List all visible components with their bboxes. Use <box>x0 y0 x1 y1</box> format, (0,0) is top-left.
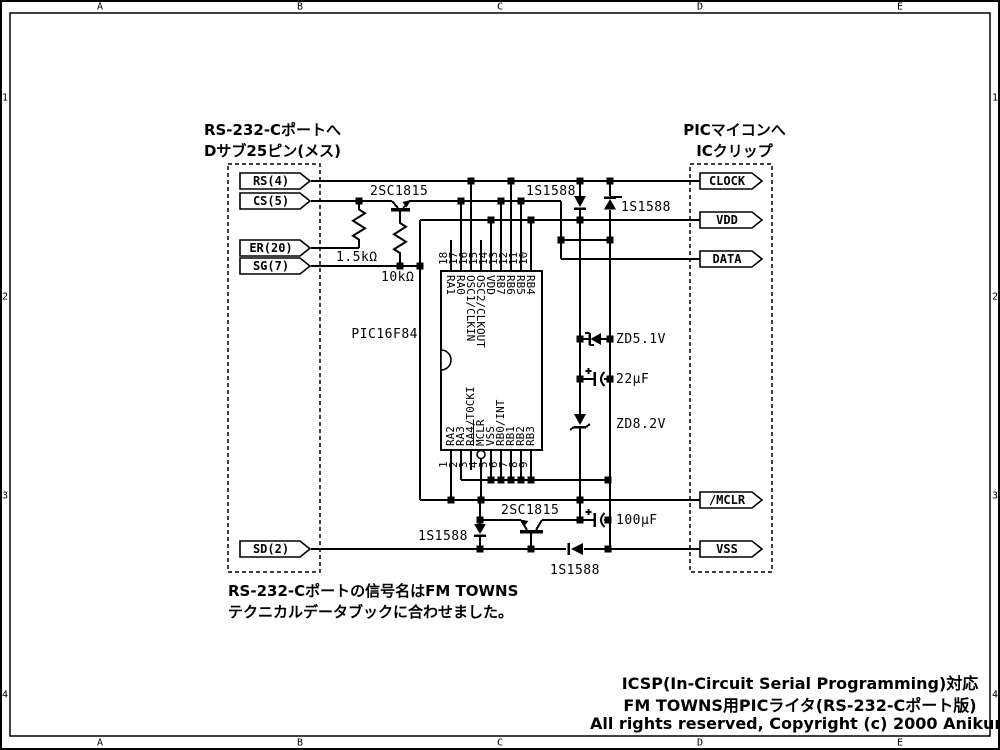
pin-number: 10 <box>517 252 530 265</box>
junction-dot <box>417 263 424 270</box>
junction-dot <box>605 546 612 553</box>
right-connector-label: CLOCK <box>700 173 754 189</box>
part-label-zd2: ZD8.2V <box>616 417 666 432</box>
junction-dot <box>508 477 515 484</box>
diode-1s1588-symbol <box>604 199 616 210</box>
junction-dot <box>577 517 584 524</box>
resistor-1k5 <box>353 201 365 248</box>
junction-dot <box>448 497 455 504</box>
junction-dot <box>607 376 614 383</box>
junction-dot <box>528 477 535 484</box>
zener-symbol <box>591 333 602 345</box>
left-box-header-2: Dサブ25ピン(メス) <box>190 140 355 161</box>
part-label-c2: 100µF <box>616 513 658 528</box>
left-connector-box <box>228 164 320 572</box>
junction-dot <box>577 376 584 383</box>
ic-body <box>441 271 542 450</box>
right-box-header-1: PICマイコンへ <box>652 119 817 140</box>
junction-dot <box>458 198 465 205</box>
junction-dot <box>607 178 614 185</box>
junction-dot <box>478 497 485 504</box>
ruler-label: D <box>697 738 703 749</box>
part-label-d1: 1S1588 <box>526 184 576 199</box>
right-connector-label: VSS <box>700 541 754 557</box>
junction-dot <box>528 546 535 553</box>
junction-dot <box>605 477 612 484</box>
ruler-label: B <box>297 738 303 749</box>
ruler-label: E <box>897 2 903 13</box>
diode-1s1588-symbol <box>474 524 486 534</box>
ruler-label: B <box>297 2 303 13</box>
left-connector-label: RS(4) <box>240 173 302 189</box>
right-connector-label: /MCLR <box>700 492 754 508</box>
junction-dot <box>498 198 505 205</box>
ruler-label: 3 <box>2 491 8 502</box>
ruler-label: A <box>97 738 103 749</box>
schematic-sheet: RS-232-Cポートへ Dサブ25ピン(メス) PICマイコンへ ICクリップ… <box>0 0 1000 750</box>
junction-dot <box>605 517 612 524</box>
right-connector-label: DATA <box>700 251 754 267</box>
left-connector-label: ER(20) <box>240 240 302 256</box>
schematic-canvas <box>0 0 1000 750</box>
part-label-r1: 1.5kΩ <box>336 250 378 265</box>
ruler-label: 4 <box>992 690 998 701</box>
resistor-10k <box>394 210 406 266</box>
junction-dot <box>518 477 525 484</box>
left-connector-label: SD(2) <box>240 541 302 557</box>
junction-dot <box>488 477 495 484</box>
zener-symbol <box>574 414 586 425</box>
part-label-d4: 1S1588 <box>550 563 600 578</box>
q2-emitter-arrow <box>520 520 529 527</box>
ruler-label: C <box>497 738 503 749</box>
junction-dot <box>477 517 484 524</box>
mclr-bubble <box>477 451 485 459</box>
right-box-header-2: ICクリップ <box>652 140 817 161</box>
junction-dot <box>607 336 614 343</box>
pin-name: RB3 <box>524 426 537 446</box>
ruler-label: 1 <box>992 93 998 104</box>
junction-dot <box>577 217 584 224</box>
junction-dot <box>356 198 363 205</box>
right-connector-label: VDD <box>700 212 754 228</box>
left-connector-label: SG(7) <box>240 258 302 274</box>
note-line-2: テクニカルデータブックに合わせました。 <box>228 601 513 622</box>
junction-dot <box>468 178 475 185</box>
zener-hook <box>570 427 574 430</box>
ruler-label: 2 <box>992 292 998 303</box>
part-label-q2: 2SC1815 <box>501 503 559 518</box>
ruler-label: E <box>897 738 903 749</box>
junction-dot <box>558 237 565 244</box>
junction-dot <box>498 477 505 484</box>
junction-dot <box>518 198 525 205</box>
diode-1s1588-symbol <box>571 543 583 555</box>
left-box-header-1: RS-232-Cポートへ <box>190 119 355 140</box>
ruler-label: D <box>697 2 703 13</box>
title-line-1: ICSP(In-Circuit Serial Programming)対応 <box>590 670 1000 694</box>
note-line-1: RS-232-Cポートの信号名はFM TOWNS <box>228 580 518 601</box>
part-label-q1: 2SC1815 <box>370 184 428 199</box>
junction-dot <box>488 217 495 224</box>
ic-name-label: PIC16F84 <box>348 327 418 342</box>
left-connector-label: CS(5) <box>240 193 302 209</box>
ruler-label: A <box>97 2 103 13</box>
zener-hook <box>586 424 590 427</box>
junction-dot <box>577 178 584 185</box>
ruler-label: 3 <box>992 491 998 502</box>
ruler-label: 1 <box>2 93 8 104</box>
part-label-r2: 10kΩ <box>381 270 414 285</box>
q1-collector <box>392 201 398 208</box>
part-label-d2: 1S1588 <box>621 200 671 215</box>
ruler-label: C <box>497 2 503 13</box>
cap-100uf-plate-neg <box>601 513 605 527</box>
pin-number: 9 <box>517 461 530 468</box>
part-label-d3: 1S1588 <box>418 529 468 544</box>
ruler-label: 2 <box>2 292 8 303</box>
title-line-3: All rights reserved, Copyright (c) 2000 … <box>590 714 1000 733</box>
junction-dot <box>607 237 614 244</box>
part-label-c1: 22µF <box>616 372 649 387</box>
pin-name: RB4 <box>524 275 537 295</box>
junction-dot <box>508 178 515 185</box>
junction-dot <box>577 497 584 504</box>
junction-dot <box>477 546 484 553</box>
junction-dot <box>528 217 535 224</box>
junction-dot <box>577 336 584 343</box>
cap-22uf-plate-neg <box>601 372 605 386</box>
junction-dot <box>397 263 404 270</box>
ruler-label: 4 <box>2 690 8 701</box>
title-line-2: FM TOWNS用PICライタ(RS-232-Cポート版) <box>590 692 1000 716</box>
q2-collector <box>536 520 542 530</box>
part-label-zd1: ZD5.1V <box>616 332 666 347</box>
